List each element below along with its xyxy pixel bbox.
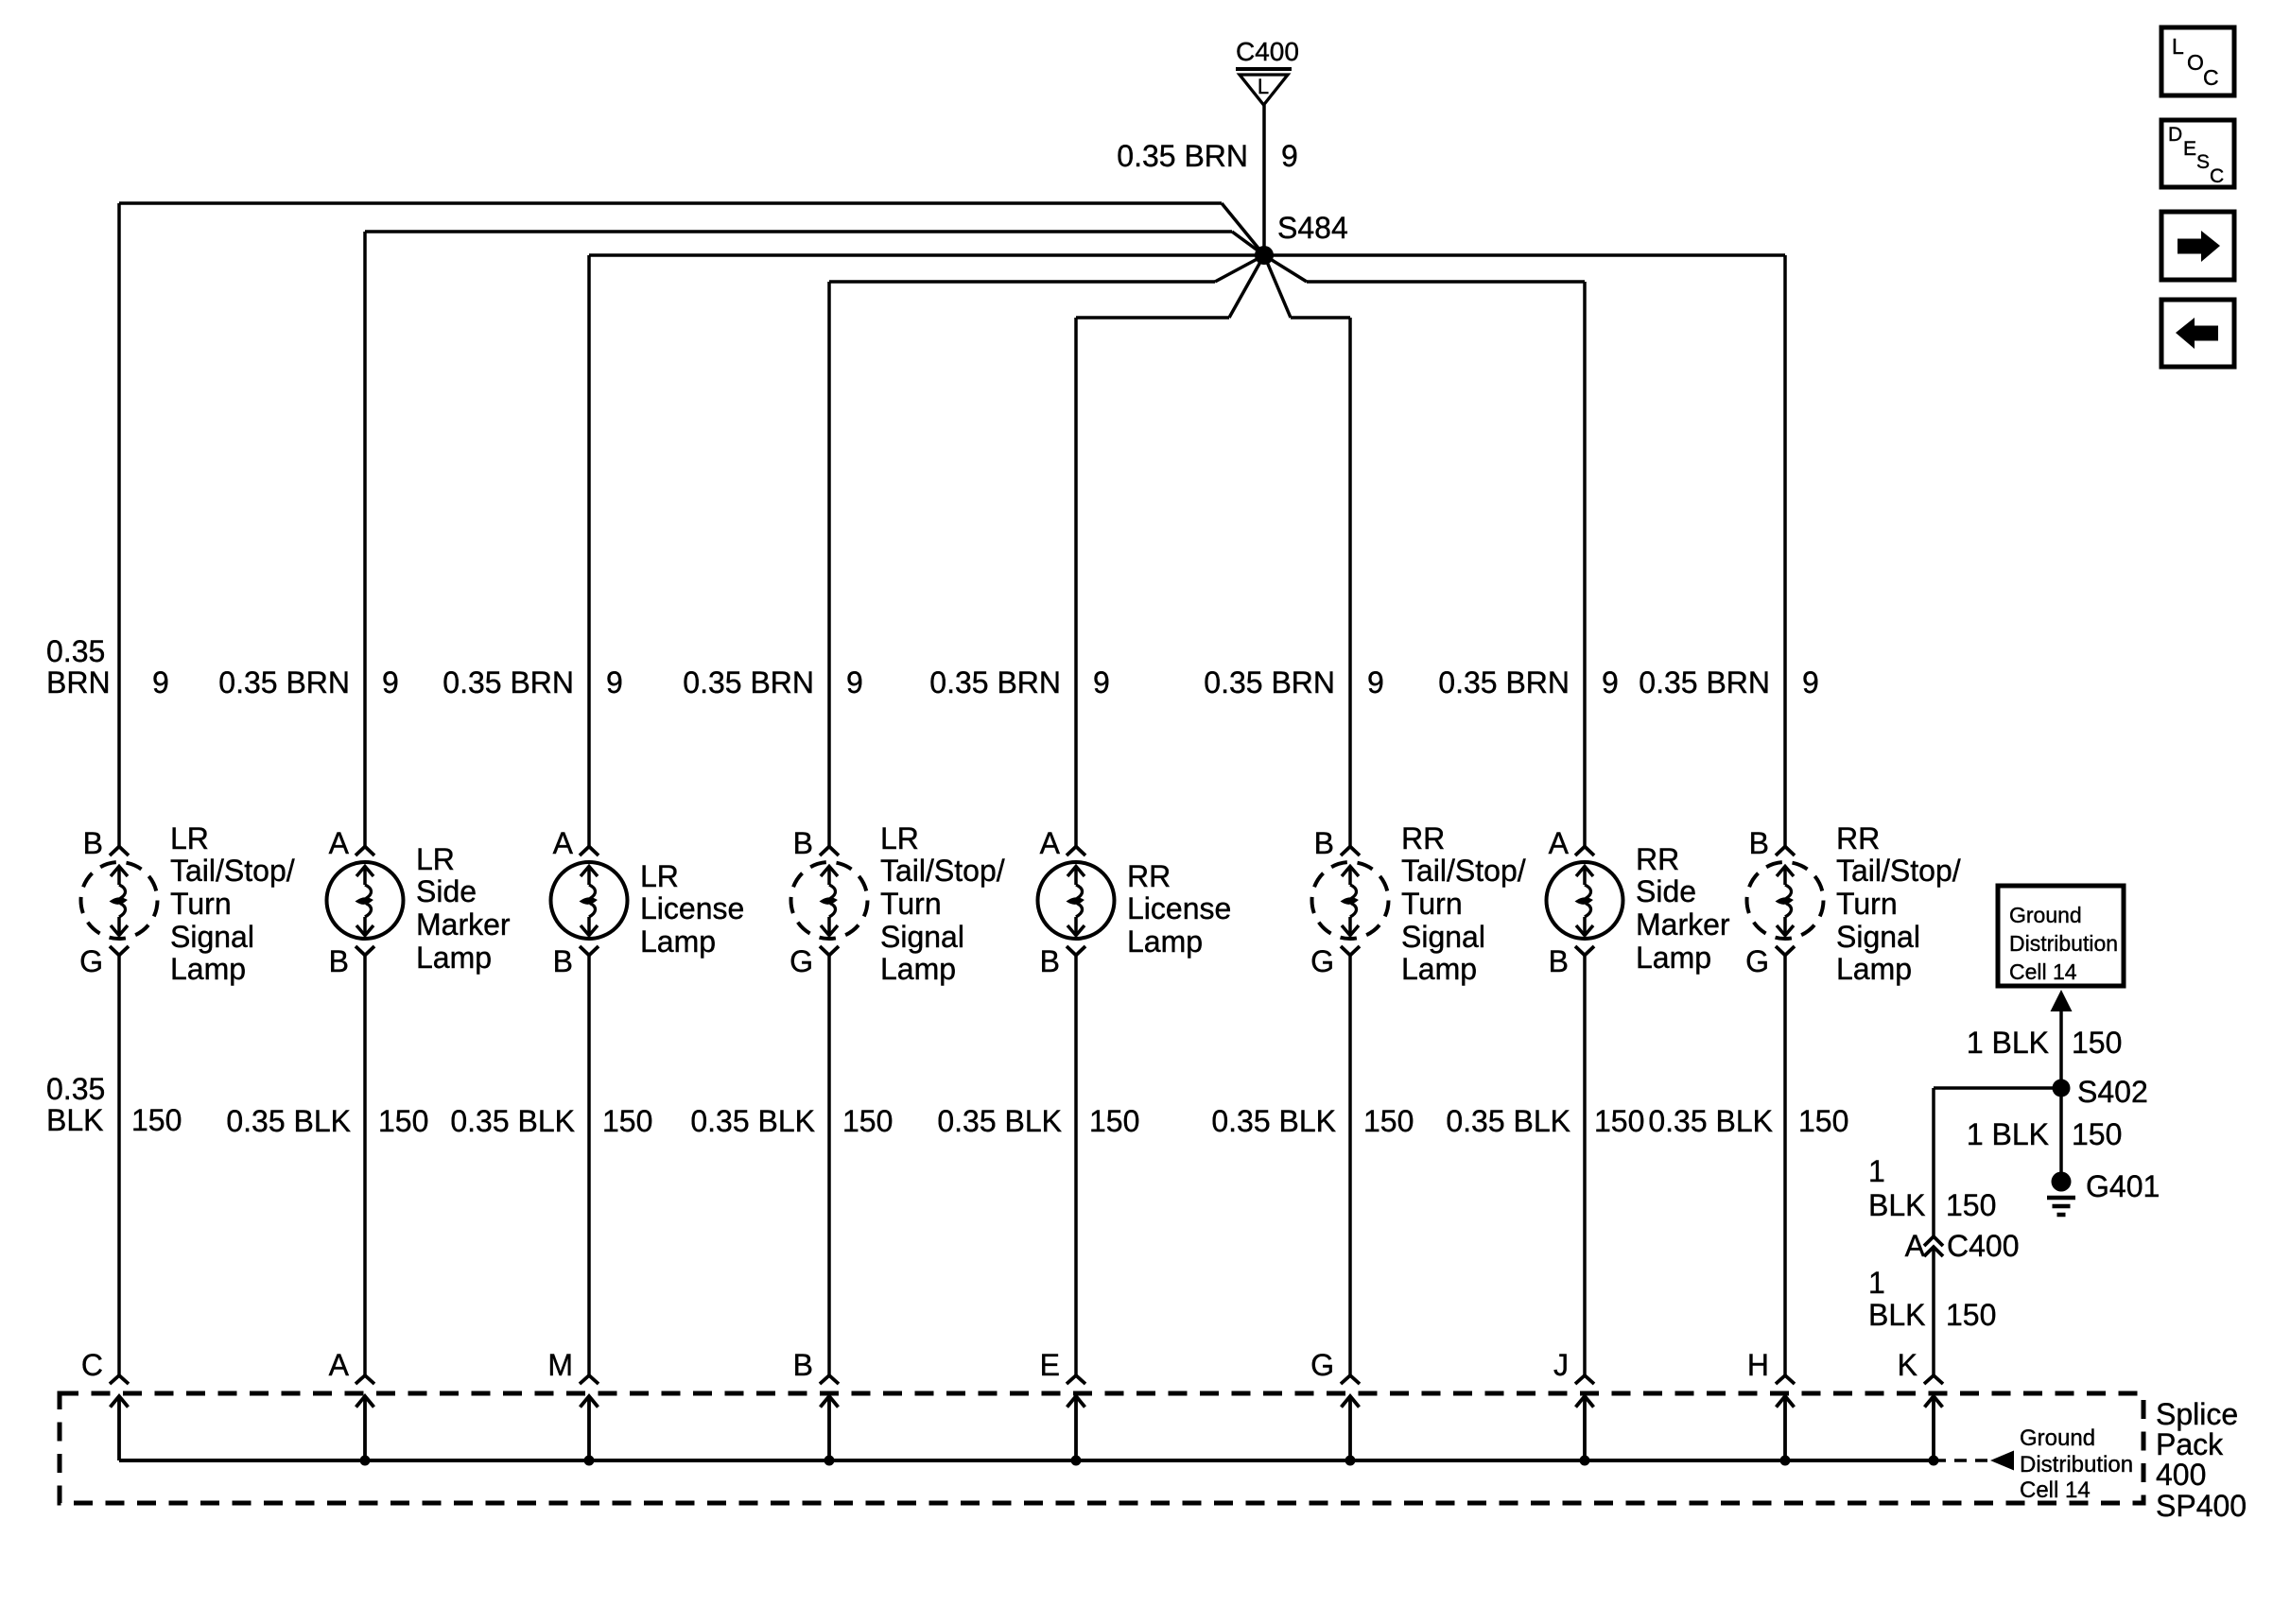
svg-text:Side: Side <box>416 874 477 908</box>
svg-text:C: C <box>81 1348 103 1382</box>
svg-text:C400: C400 <box>1947 1229 2020 1263</box>
svg-text:G: G <box>1310 944 1334 978</box>
svg-text:License: License <box>1127 891 1231 925</box>
svg-text:1 BLK: 1 BLK <box>1967 1026 2049 1060</box>
svg-text:G401: G401 <box>2086 1169 2160 1203</box>
svg-text:License: License <box>640 891 744 925</box>
svg-text:0.35: 0.35 <box>46 634 105 668</box>
svg-text:0.35: 0.35 <box>46 1072 105 1106</box>
svg-text:150: 150 <box>1594 1104 1644 1138</box>
svg-text:C: C <box>2210 165 2224 187</box>
svg-text:0.35 BLK: 0.35 BLK <box>1648 1104 1773 1138</box>
svg-text:9: 9 <box>1281 139 1298 173</box>
svg-text:A: A <box>1040 826 1061 860</box>
svg-text:C400: C400 <box>1236 37 1299 66</box>
svg-text:Lamp: Lamp <box>1401 952 1477 986</box>
svg-text:Side: Side <box>1636 874 1696 908</box>
svg-text:150: 150 <box>1946 1298 1996 1332</box>
svg-text:D: D <box>2168 124 2182 146</box>
svg-text:1: 1 <box>1868 1154 1885 1188</box>
svg-text:150: 150 <box>1363 1104 1414 1138</box>
svg-text:E: E <box>1040 1348 1060 1382</box>
svg-text:BLK: BLK <box>1868 1298 1925 1332</box>
svg-text:150: 150 <box>378 1104 428 1138</box>
svg-text:9: 9 <box>382 665 399 700</box>
svg-text:BLK: BLK <box>46 1103 103 1137</box>
svg-text:Turn: Turn <box>880 887 942 921</box>
svg-text:Lamp: Lamp <box>880 952 956 986</box>
svg-text:B: B <box>1314 826 1334 860</box>
svg-text:B: B <box>1749 826 1769 860</box>
svg-text:SP400: SP400 <box>2156 1489 2247 1523</box>
svg-text:Marker: Marker <box>1636 907 1730 942</box>
svg-text:0.35 BRN: 0.35 BRN <box>218 665 350 700</box>
svg-text:Signal: Signal <box>1836 920 1920 954</box>
svg-text:150: 150 <box>2072 1117 2122 1151</box>
svg-text:9: 9 <box>606 665 623 700</box>
svg-text:S402: S402 <box>2077 1075 2148 1109</box>
svg-text:LR: LR <box>416 842 455 876</box>
svg-text:BRN: BRN <box>46 665 111 700</box>
svg-text:B: B <box>793 1348 813 1382</box>
svg-text:Lamp: Lamp <box>640 924 716 959</box>
svg-text:Distribution: Distribution <box>2020 1452 2133 1477</box>
svg-text:9: 9 <box>1802 665 1819 700</box>
svg-text:0.35 BLK: 0.35 BLK <box>690 1104 815 1138</box>
svg-text:0.35 BRN: 0.35 BRN <box>683 665 814 700</box>
svg-text:LR: LR <box>170 821 209 855</box>
svg-text:G: G <box>79 944 103 978</box>
svg-text:1 BLK: 1 BLK <box>1967 1117 2049 1151</box>
svg-text:0.35 BRN: 0.35 BRN <box>1117 139 1248 173</box>
svg-text:A: A <box>1905 1229 1926 1263</box>
svg-text:0.35 BLK: 0.35 BLK <box>450 1104 575 1138</box>
svg-text:RR: RR <box>1401 821 1445 855</box>
svg-text:Pack: Pack <box>2156 1427 2224 1461</box>
svg-text:S484: S484 <box>1277 211 1348 245</box>
svg-text:A: A <box>1549 826 1570 860</box>
svg-text:Lamp: Lamp <box>170 952 246 986</box>
svg-text:0.35 BLK: 0.35 BLK <box>937 1104 1062 1138</box>
svg-text:RR: RR <box>1836 821 1880 855</box>
svg-text:RR: RR <box>1127 859 1171 893</box>
svg-text:Distribution: Distribution <box>2009 931 2118 956</box>
svg-text:Turn: Turn <box>170 887 232 921</box>
svg-text:Tail/Stop/: Tail/Stop/ <box>1836 854 1961 888</box>
svg-text:LR: LR <box>640 859 679 893</box>
svg-text:0.35 BRN: 0.35 BRN <box>1639 665 1770 700</box>
svg-text:Lamp: Lamp <box>416 941 492 975</box>
svg-text:0.35 BRN: 0.35 BRN <box>442 665 574 700</box>
svg-text:C: C <box>2203 65 2219 90</box>
svg-text:9: 9 <box>1093 665 1110 700</box>
svg-text:0.35 BRN: 0.35 BRN <box>929 665 1061 700</box>
svg-text:1: 1 <box>1868 1266 1885 1300</box>
svg-text:BLK: BLK <box>1868 1188 1925 1222</box>
svg-text:B: B <box>1040 944 1060 978</box>
svg-text:9: 9 <box>152 665 169 700</box>
svg-text:B: B <box>553 944 573 978</box>
svg-text:S: S <box>2196 151 2210 173</box>
svg-text:Signal: Signal <box>170 920 254 954</box>
svg-text:9: 9 <box>1602 665 1619 700</box>
svg-text:B: B <box>1549 944 1569 978</box>
svg-text:LR: LR <box>880 821 919 855</box>
svg-text:RR: RR <box>1636 842 1679 876</box>
svg-text:Lamp: Lamp <box>1127 924 1203 959</box>
svg-text:Tail/Stop/: Tail/Stop/ <box>880 854 1005 888</box>
svg-text:A: A <box>553 826 574 860</box>
svg-text:0.35 BLK: 0.35 BLK <box>1211 1104 1336 1138</box>
svg-text:Signal: Signal <box>1401 920 1485 954</box>
svg-text:Marker: Marker <box>416 907 511 942</box>
svg-text:0.35 BLK: 0.35 BLK <box>1446 1104 1570 1138</box>
svg-text:G: G <box>1745 944 1769 978</box>
svg-text:K: K <box>1898 1348 1917 1382</box>
svg-text:Splice: Splice <box>2156 1397 2238 1431</box>
svg-text:150: 150 <box>1798 1104 1848 1138</box>
svg-text:Ground: Ground <box>2009 903 2082 927</box>
svg-text:0.35 BLK: 0.35 BLK <box>226 1104 351 1138</box>
svg-text:150: 150 <box>2072 1026 2122 1060</box>
svg-text:Lamp: Lamp <box>1636 941 1711 975</box>
svg-text:A: A <box>329 1348 350 1382</box>
svg-text:A: A <box>329 826 350 860</box>
svg-text:O: O <box>2187 50 2204 75</box>
svg-text:E: E <box>2183 138 2196 160</box>
svg-text:Lamp: Lamp <box>1836 952 1912 986</box>
svg-text:B: B <box>329 944 349 978</box>
svg-text:150: 150 <box>1946 1188 1996 1222</box>
svg-text:H: H <box>1747 1348 1769 1382</box>
svg-text:400: 400 <box>2156 1458 2206 1492</box>
svg-text:B: B <box>793 826 813 860</box>
svg-text:Cell 14: Cell 14 <box>2009 959 2077 984</box>
svg-text:M: M <box>547 1348 573 1382</box>
svg-text:L: L <box>2172 34 2184 59</box>
svg-text:Turn: Turn <box>1401 887 1463 921</box>
svg-text:Tail/Stop/: Tail/Stop/ <box>1401 854 1526 888</box>
svg-text:0.35 BRN: 0.35 BRN <box>1438 665 1570 700</box>
svg-text:G: G <box>1310 1348 1334 1382</box>
svg-text:J: J <box>1553 1348 1569 1382</box>
svg-text:9: 9 <box>846 665 863 700</box>
svg-text:L: L <box>1258 75 1269 98</box>
svg-text:G: G <box>789 944 813 978</box>
svg-text:Signal: Signal <box>880 920 964 954</box>
svg-text:150: 150 <box>602 1104 652 1138</box>
svg-text:Tail/Stop/: Tail/Stop/ <box>170 854 295 888</box>
svg-text:0.35 BRN: 0.35 BRN <box>1204 665 1335 700</box>
svg-text:150: 150 <box>131 1103 182 1137</box>
svg-text:Ground: Ground <box>2020 1425 2095 1451</box>
svg-text:Cell 14: Cell 14 <box>2020 1477 2091 1503</box>
svg-text:Turn: Turn <box>1836 887 1898 921</box>
svg-text:9: 9 <box>1367 665 1384 700</box>
svg-text:B: B <box>83 826 103 860</box>
svg-text:150: 150 <box>842 1104 893 1138</box>
svg-text:150: 150 <box>1089 1104 1139 1138</box>
